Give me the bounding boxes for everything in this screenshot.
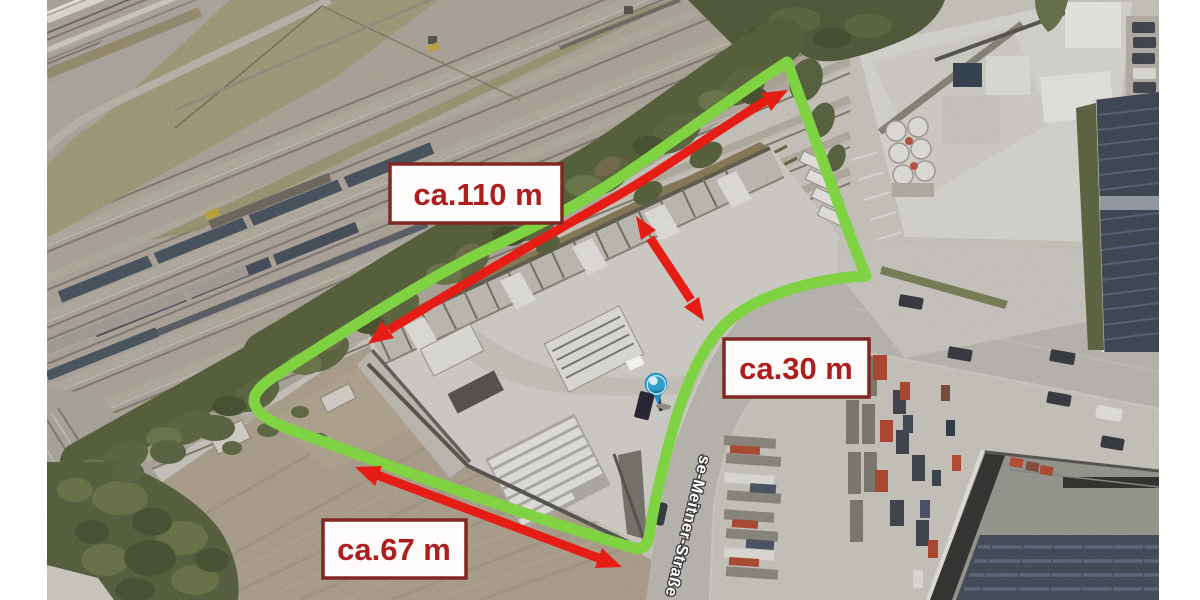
svg-text:ca.30 m: ca.30 m bbox=[739, 351, 853, 386]
svg-text:ca.67 m: ca.67 m bbox=[337, 532, 451, 567]
svg-text:ca.110 m: ca.110 m bbox=[413, 177, 542, 212]
